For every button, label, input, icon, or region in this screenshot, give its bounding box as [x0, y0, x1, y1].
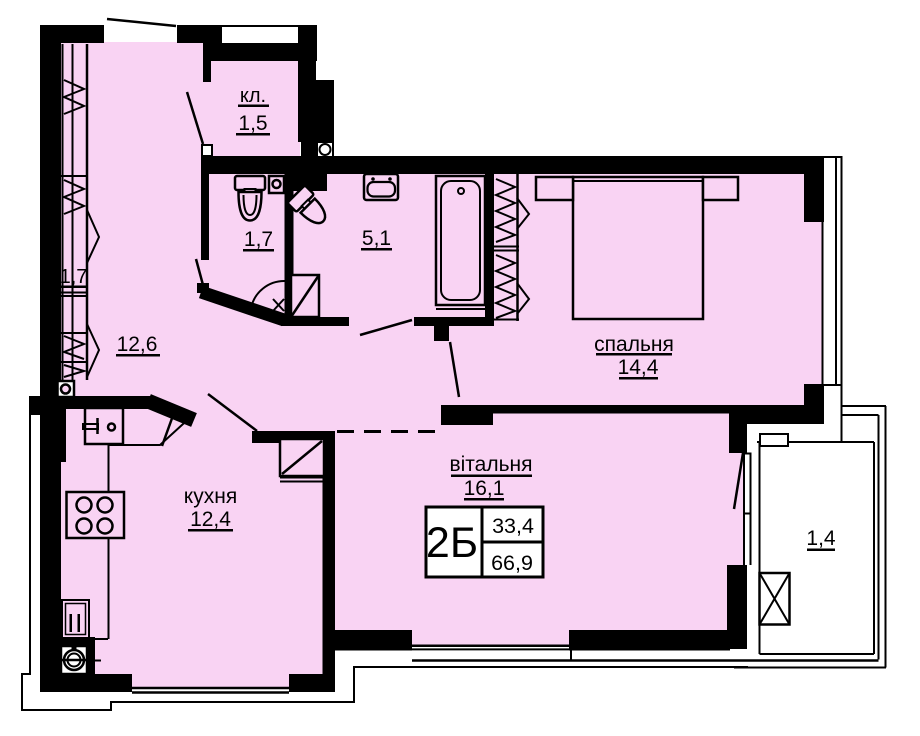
svg-text:2Б: 2Б: [426, 519, 478, 567]
svg-text:5,1: 5,1: [362, 227, 391, 250]
svg-text:спальня: спальня: [594, 333, 674, 356]
svg-text:33,4: 33,4: [492, 514, 534, 538]
svg-text:кл.: кл.: [240, 85, 266, 107]
svg-text:12,6: 12,6: [117, 333, 158, 356]
svg-text:66,9: 66,9: [491, 551, 533, 575]
svg-text:1,7: 1,7: [244, 228, 273, 251]
svg-text:14,4: 14,4: [618, 356, 659, 379]
svg-text:вітальня: вітальня: [449, 453, 532, 476]
svg-text:16,1: 16,1: [464, 477, 505, 500]
svg-text:1,7: 1,7: [60, 266, 88, 288]
svg-text:12,4: 12,4: [190, 508, 231, 531]
svg-text:кухня: кухня: [184, 485, 237, 508]
svg-text:1,5: 1,5: [238, 112, 267, 135]
svg-text:1,4: 1,4: [806, 527, 836, 550]
